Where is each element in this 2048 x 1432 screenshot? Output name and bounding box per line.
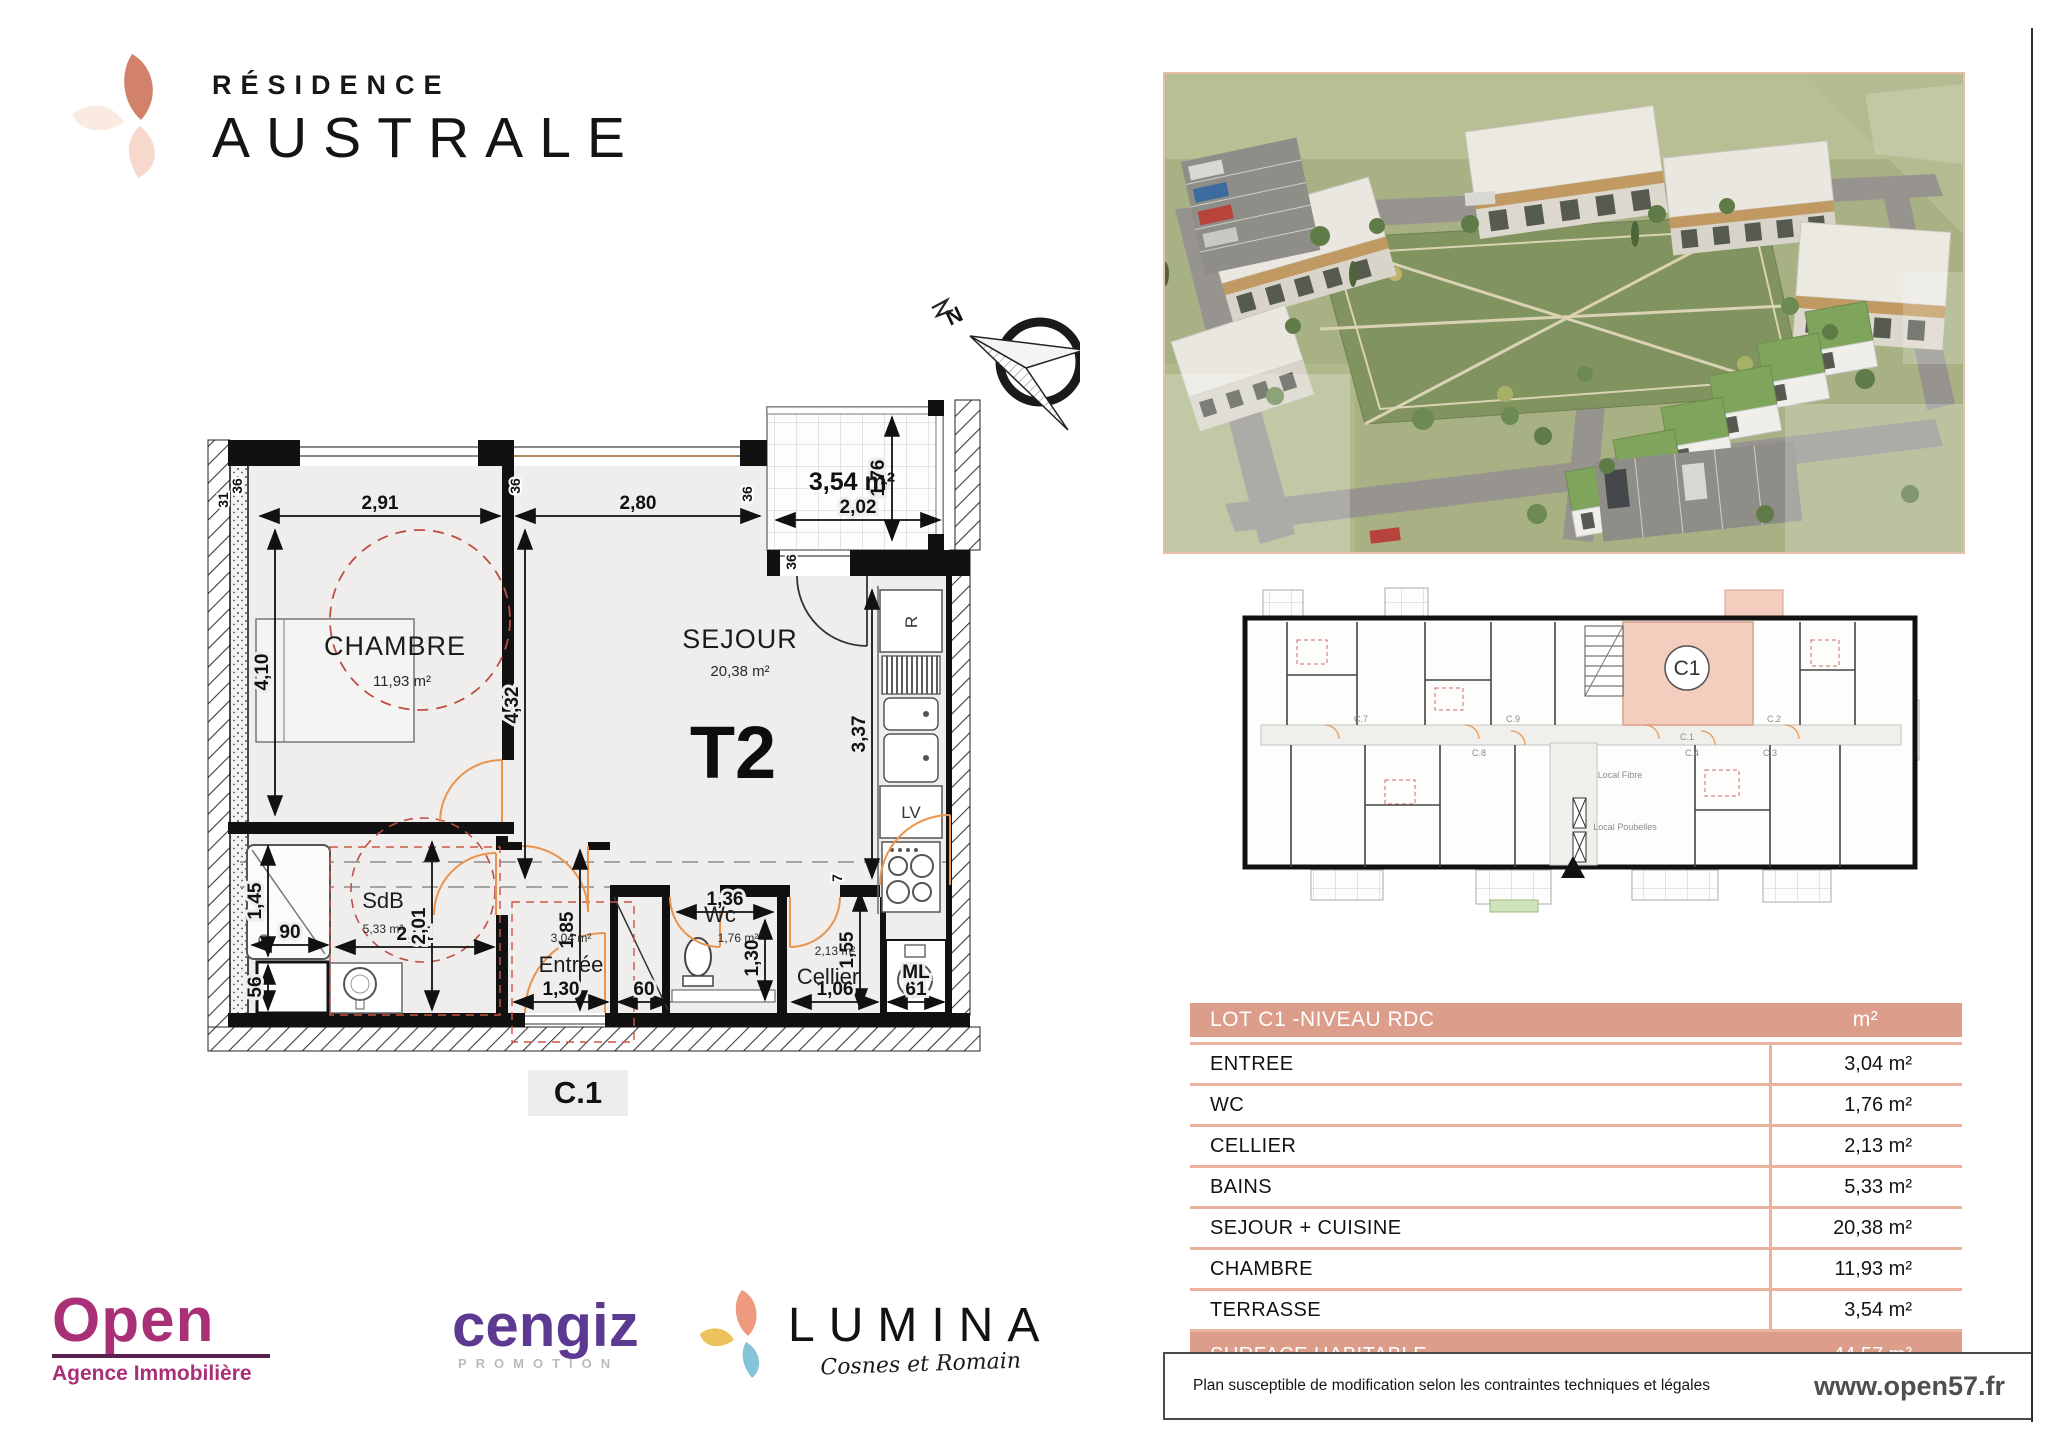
area-table: LOT C1 -NIVEAU RDC m² ENTREE 3,04 m² WC … [1190,1003,1962,1378]
svg-text:3,37: 3,37 [849,716,870,753]
c1-unit-highlight: C1 [1623,622,1753,725]
residence-name: AUSTRALE [212,105,641,171]
room-label-sdb: SdB [362,888,404,913]
table-row: TERRASSE 3,54 m² [1190,1291,1962,1332]
svg-text:C.9: C.9 [1506,714,1520,724]
cengiz-logo: cengiz PROMOTION [452,1296,639,1371]
compass-icon: N [932,300,1080,430]
page-frame-right [2031,28,2033,1422]
sheet-footer: Plan susceptible de modification selon l… [1163,1352,2033,1420]
svg-text:4,32: 4,32 [502,687,523,724]
svg-text:ML: ML [902,962,930,983]
svg-text:C.7: C.7 [1354,714,1368,724]
svg-text:N: N [942,301,967,330]
table-title: LOT C1 -NIVEAU RDC [1190,1008,1769,1032]
svg-text:2,02: 2,02 [840,497,877,518]
kitchen: R LV [878,586,942,914]
svg-text:4,10: 4,10 [252,654,273,691]
lumina-logo: LUMINA Cosnes et Romain [700,1288,1053,1385]
terrace-area: 3,54 m² [809,468,895,496]
type-label: T2 [690,711,776,794]
svg-text:1,30: 1,30 [543,979,580,1000]
room-area-chambre: 11,93 m² [373,673,431,690]
stairs [1585,626,1623,696]
svg-text:Local Fibre: Local Fibre [1598,770,1643,780]
table-row: WC 1,76 m² [1190,1086,1962,1127]
svg-text:1,30: 1,30 [742,940,763,977]
plan-sheet: RÉSIDENCE AUSTRALE [0,0,2048,1432]
washbasin [330,963,402,1013]
table-row: CELLIER 2,13 m² [1190,1127,1962,1168]
room-label-wc: Wc [704,902,736,927]
svg-text:Local Poubelles: Local Poubelles [1593,822,1657,832]
site-overview-render [1163,72,1965,554]
svg-text:7: 7 [829,874,845,882]
lumina-petal-icon [700,1288,772,1385]
room-area-cellier: 2,13 m² [815,944,856,958]
room-area-entree: 3,04 m² [551,931,592,945]
svg-text:C.8: C.8 [1472,748,1486,758]
svg-text:60: 60 [633,979,654,1000]
residence-petal-icon [68,50,186,185]
room-label-entree: Entrée [539,952,604,977]
open-logo: Open Agence Immobilière [52,1290,270,1386]
table-row: SEJOUR + CUISINE 20,38 m² [1190,1209,1962,1250]
room-area-sdb: 5,33 m² [363,922,404,936]
table-row: CHAMBRE 11,93 m² [1190,1250,1962,1291]
svg-text:36: 36 [507,478,523,494]
svg-text:C.4: C.4 [1685,748,1699,758]
svg-text:2,91: 2,91 [362,493,399,514]
svg-text:36: 36 [783,554,799,570]
fridge-label: R [902,616,921,628]
level-plan: C1 [1225,580,1935,955]
brand: RÉSIDENCE AUSTRALE [68,50,641,185]
footer-disclaimer: Plan susceptible de modification selon l… [1165,1377,1710,1395]
table-row: ENTREE 3,04 m² [1190,1045,1962,1086]
svg-text:1,45: 1,45 [245,882,266,919]
room-area-wc: 1,76 m² [718,931,759,945]
table-row: BAINS 5,33 m² [1190,1168,1962,1209]
room-label-chambre: CHAMBRE [324,631,466,661]
room-label-cellier: Cellier [797,964,859,989]
website-text: www.open57.fr [1814,1371,2031,1402]
room-area-sejour: 20,38 m² [710,663,769,680]
svg-text:C.2: C.2 [1767,714,1781,724]
svg-text:36: 36 [739,486,755,502]
table-unit: m² [1769,1008,1962,1032]
residence-label: RÉSIDENCE [212,70,641,101]
svg-text:C.1: C.1 [1680,732,1694,742]
svg-text:31: 31 [215,492,231,508]
lot-label: C.1 [554,1075,602,1110]
area-table-header: LOT C1 -NIVEAU RDC m² [1190,1003,1962,1037]
svg-text:2,01: 2,01 [409,907,430,944]
svg-text:C.3: C.3 [1763,748,1777,758]
room-label-sejour: SEJOUR [682,624,798,654]
dishwasher-label: LV [901,803,921,822]
svg-text:90: 90 [279,922,300,943]
svg-text:36: 36 [229,478,245,494]
c1-unit-label: C1 [1674,657,1701,680]
floor-plan: R LV [180,290,1080,1190]
svg-text:2,80: 2,80 [620,493,657,514]
svg-text:56: 56 [245,976,266,997]
partner-logos: Open Agence Immobilière cengiz PROMOTION… [52,1282,1152,1402]
